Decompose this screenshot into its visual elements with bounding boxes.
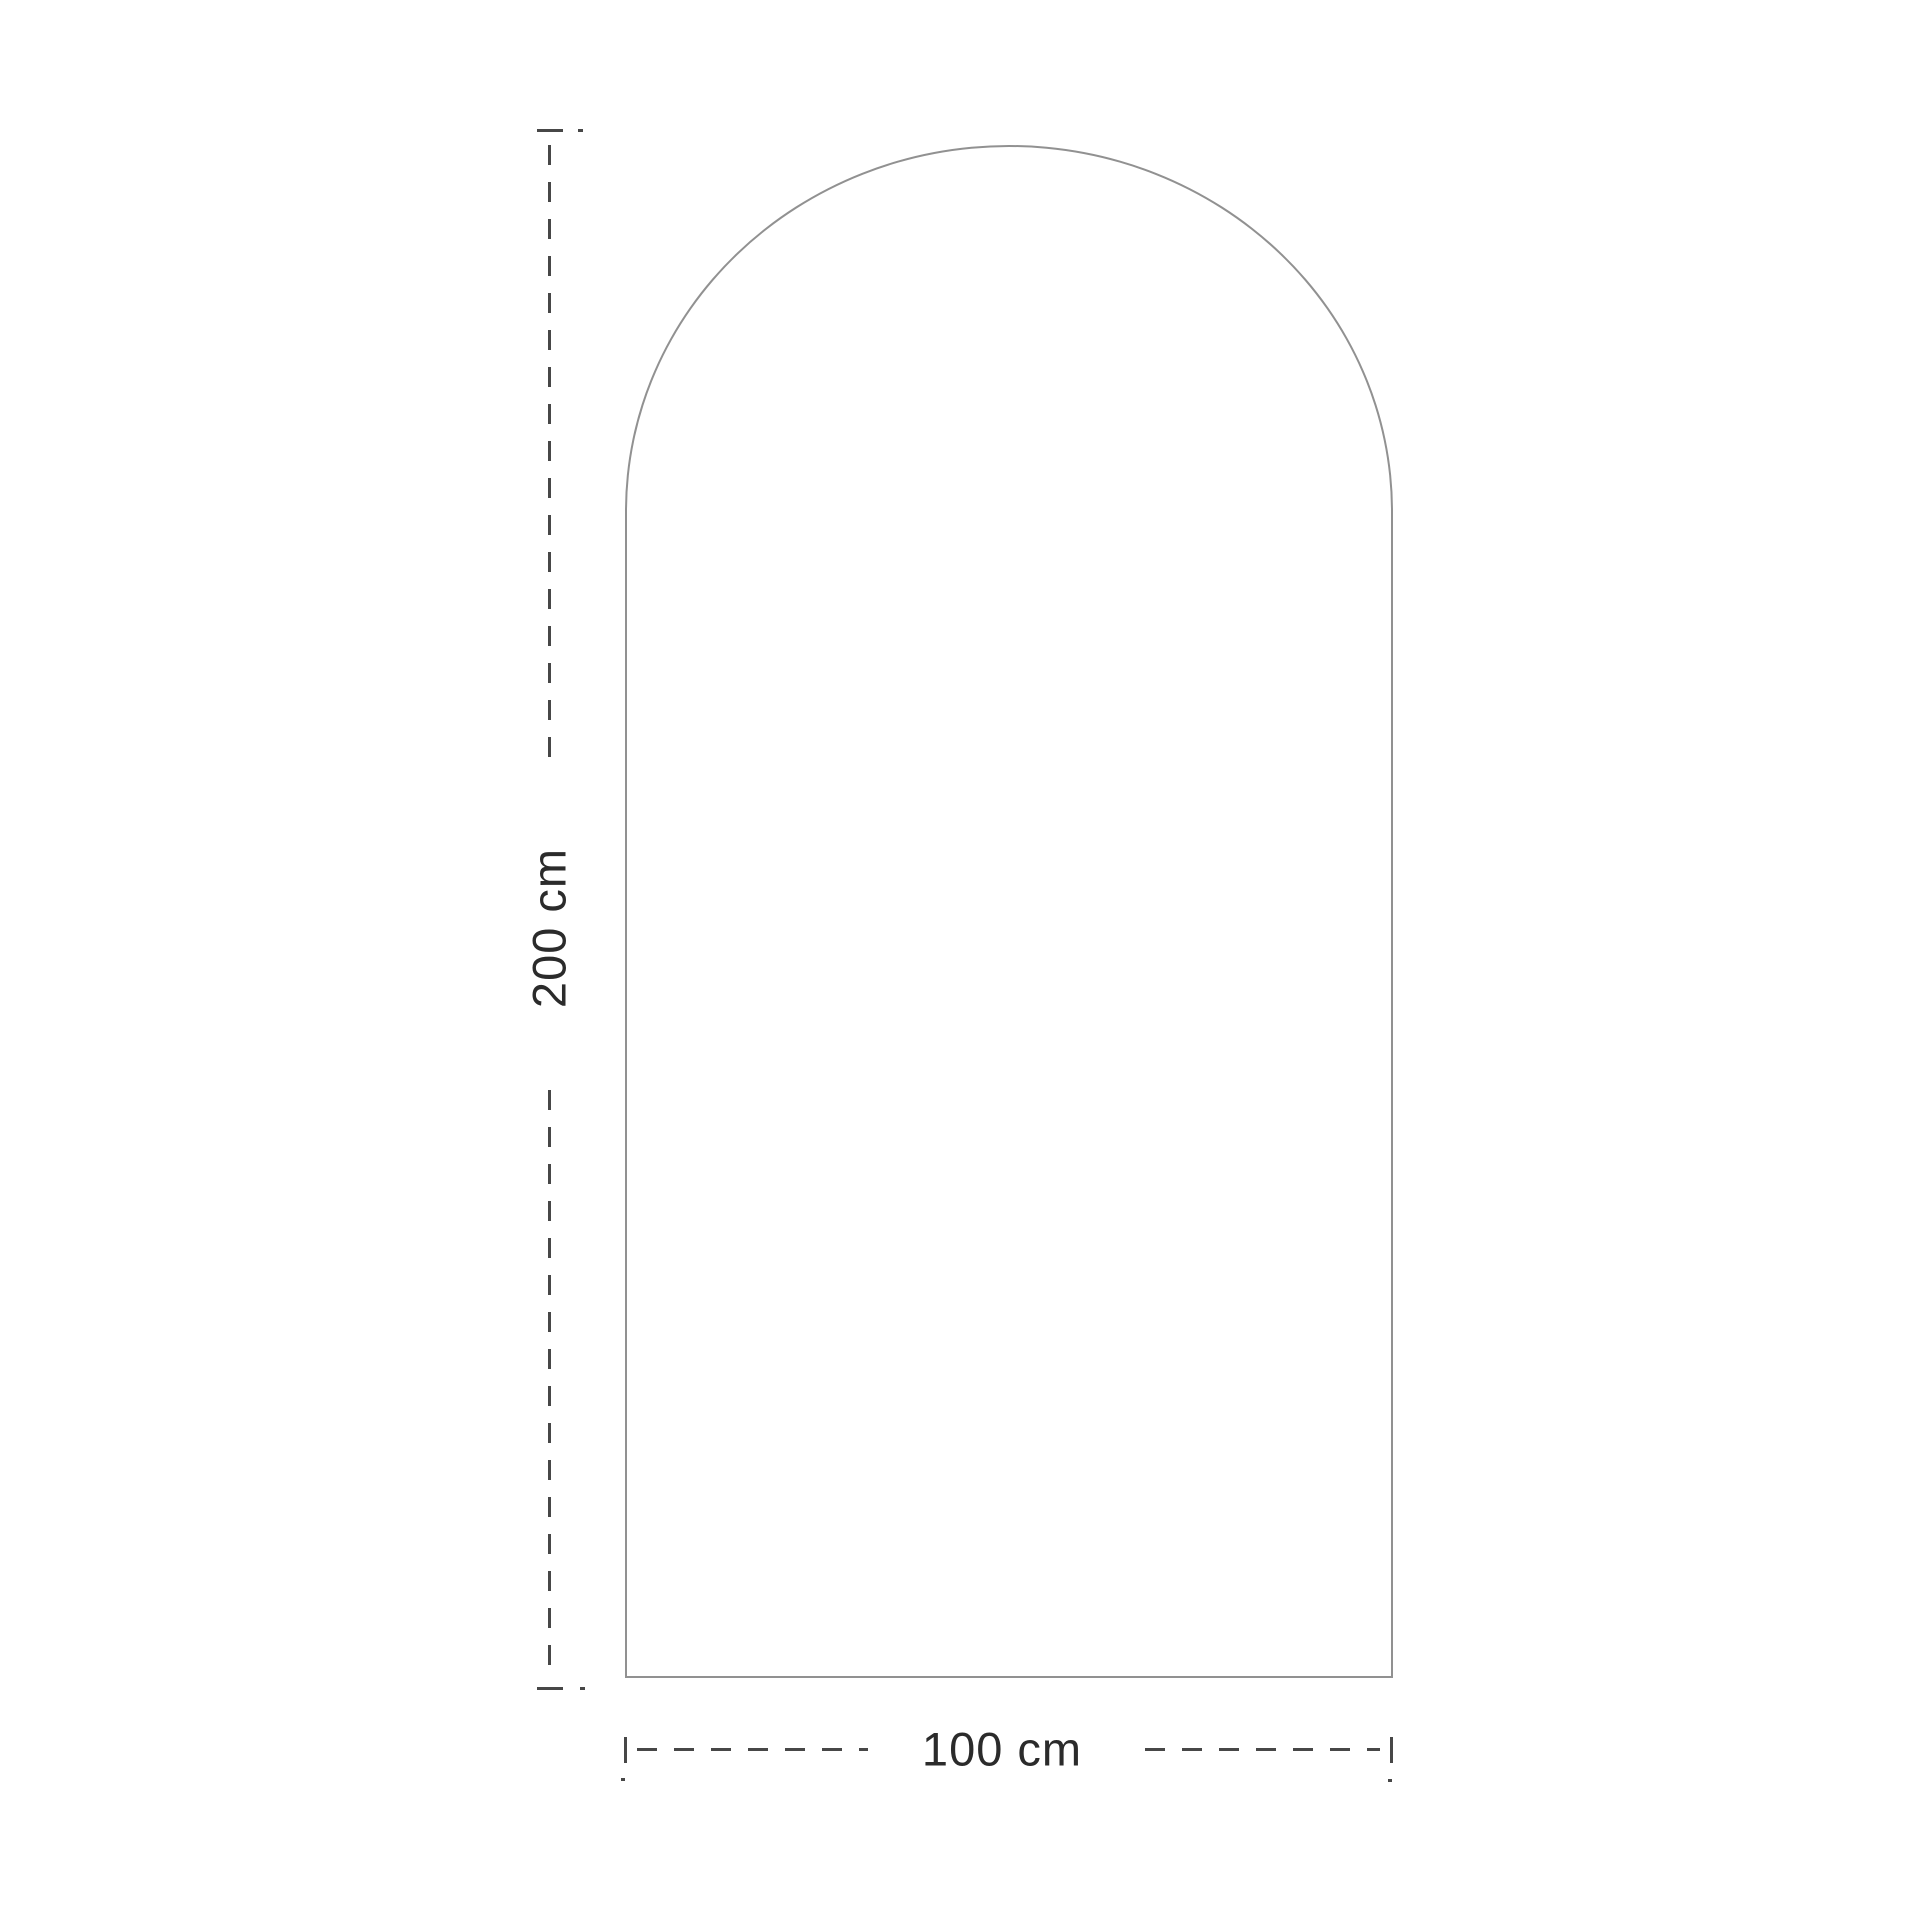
width-dimension-line-right [1145,1748,1380,1751]
width-dimension-left-tick [624,1737,627,1763]
height-dimension-label: 200 cm [522,848,577,1008]
width-dimension-line-left [637,1748,868,1751]
width-dimension-left-extension-dot [621,1778,625,1781]
height-dimension-top-tick [537,129,563,132]
height-dimension-line-lower [548,1090,551,1678]
height-dimension-bottom-tick [537,1687,563,1690]
height-dimension-line-upper [548,145,551,757]
height-dimension-top-extension-dot [578,129,583,132]
width-dimension-label: 100 cm [922,1722,1082,1777]
width-dimension-right-tick [1390,1737,1393,1763]
width-dimension-right-extension-dot [1388,1779,1392,1782]
height-dimension-bottom-extension-dot [580,1687,585,1690]
arched-panel-outline [625,145,1393,1678]
dimension-diagram: 200 cm 100 cm [0,0,1920,1920]
